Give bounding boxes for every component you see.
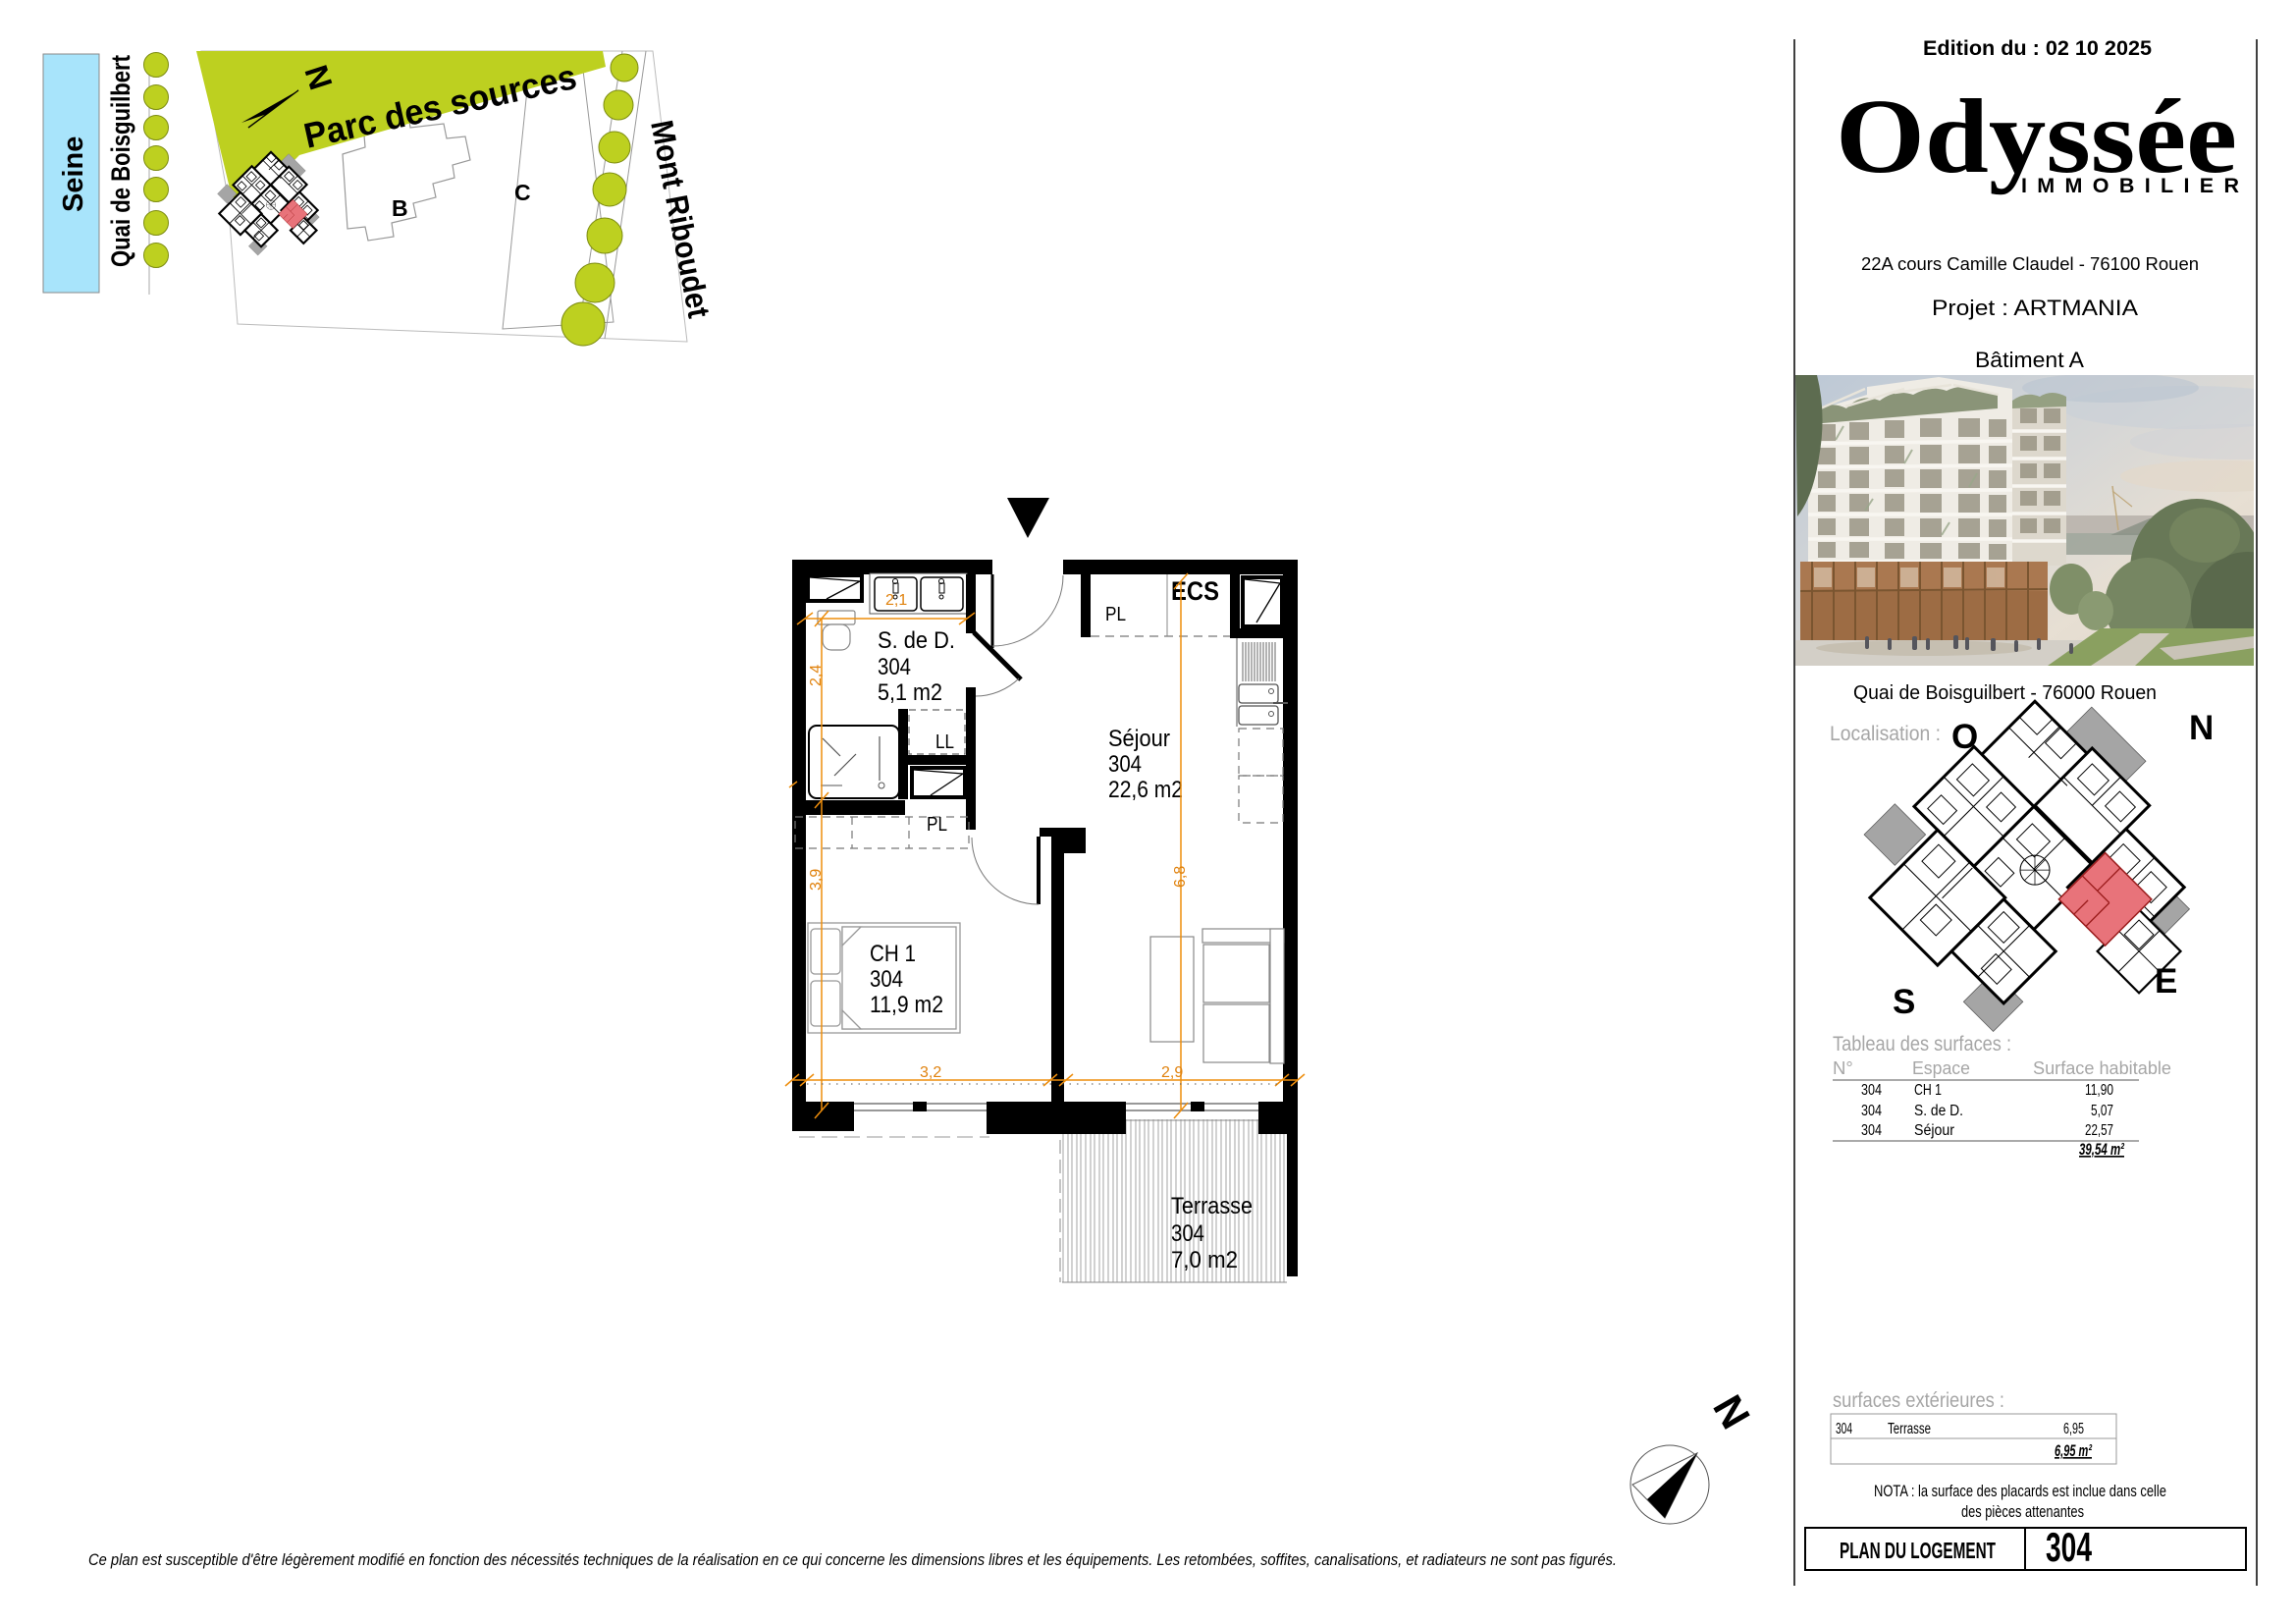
svg-text:5,1 m2: 5,1 m2 bbox=[878, 679, 942, 706]
svg-text:PLAN DU LOGEMENT: PLAN DU LOGEMENT bbox=[1840, 1538, 1996, 1563]
svg-text:304: 304 bbox=[1836, 1421, 1852, 1437]
svg-text:Surface habitable: Surface habitable bbox=[2033, 1057, 2171, 1078]
svg-text:Séjour: Séjour bbox=[1914, 1122, 1954, 1139]
svg-text:PL: PL bbox=[1105, 604, 1126, 625]
svg-text:22A cours Camille Claudel - 76: 22A cours Camille Claudel - 76100 Rouen bbox=[1861, 253, 2199, 274]
svg-text:22,57: 22,57 bbox=[2085, 1122, 2113, 1139]
svg-text:N: N bbox=[1704, 1387, 1759, 1436]
svg-text:ECS: ECS bbox=[1171, 576, 1219, 606]
svg-text:Tableau des surfaces :: Tableau des surfaces : bbox=[1833, 1033, 2011, 1056]
svg-text:304: 304 bbox=[870, 966, 903, 993]
svg-text:11,90: 11,90 bbox=[2085, 1082, 2113, 1099]
svg-text:2,1: 2,1 bbox=[885, 592, 907, 609]
svg-text:39,54 m²: 39,54 m² bbox=[2079, 1141, 2124, 1159]
svg-text:6,95 m²: 6,95 m² bbox=[2055, 1442, 2092, 1460]
svg-text:Quai de Boisguilbert: Quai de Boisguilbert bbox=[106, 55, 135, 267]
svg-text:5,07: 5,07 bbox=[2091, 1103, 2113, 1119]
svg-text:2,9: 2,9 bbox=[1161, 1064, 1183, 1081]
svg-text:7,0 m2: 7,0 m2 bbox=[1171, 1247, 1238, 1273]
svg-text:304: 304 bbox=[1171, 1220, 1204, 1247]
svg-text:CH 1: CH 1 bbox=[870, 941, 916, 967]
svg-text:C: C bbox=[514, 180, 531, 205]
svg-text:S: S bbox=[1893, 983, 1915, 1021]
svg-text:304: 304 bbox=[1861, 1082, 1882, 1099]
svg-text:PL: PL bbox=[927, 814, 947, 836]
svg-text:surfaces extérieures :: surfaces extérieures : bbox=[1833, 1389, 2004, 1412]
svg-text:des pièces attenantes: des pièces attenantes bbox=[1961, 1503, 2084, 1521]
svg-text:304: 304 bbox=[1861, 1103, 1882, 1119]
svg-text:Terrasse: Terrasse bbox=[1171, 1193, 1253, 1219]
svg-text:Terrasse: Terrasse bbox=[1888, 1421, 1931, 1437]
svg-text:Localisation :: Localisation : bbox=[1830, 723, 1941, 745]
svg-text:2,4: 2,4 bbox=[808, 665, 825, 686]
svg-text:304: 304 bbox=[2046, 1524, 2092, 1570]
svg-text:304: 304 bbox=[878, 654, 911, 680]
svg-text:LL: LL bbox=[935, 731, 954, 753]
svg-text:CH 1: CH 1 bbox=[1914, 1082, 1942, 1099]
svg-text:Mont Riboudet: Mont Riboudet bbox=[644, 117, 717, 320]
svg-text:Quai de Boisguilbert - 76000 R: Quai de Boisguilbert - 76000 Rouen bbox=[1853, 682, 2157, 704]
svg-text:Seine: Seine bbox=[58, 136, 89, 212]
svg-text:Projet : ARTMANIA: Projet : ARTMANIA bbox=[1932, 296, 2138, 320]
svg-text:6,95: 6,95 bbox=[2063, 1421, 2084, 1437]
svg-text:O: O bbox=[1951, 718, 1978, 756]
svg-text:Ce plan est susceptible d'être: Ce plan est susceptible d'être légèremen… bbox=[88, 1550, 1617, 1569]
svg-text:11,9 m2: 11,9 m2 bbox=[870, 992, 943, 1018]
svg-text:N°: N° bbox=[1833, 1057, 1853, 1078]
svg-text:IMMOBILIER: IMMOBILIER bbox=[2021, 174, 2239, 197]
svg-text:Séjour: Séjour bbox=[1108, 726, 1170, 752]
svg-text:NOTA : la surface des placards: NOTA : la surface des placards est inclu… bbox=[1874, 1483, 2166, 1500]
svg-text:Bâtiment A: Bâtiment A bbox=[1975, 348, 2084, 372]
svg-text:22,6 m2: 22,6 m2 bbox=[1108, 777, 1183, 803]
svg-text:6,8: 6,8 bbox=[1172, 866, 1189, 888]
svg-text:S. de D.: S. de D. bbox=[1914, 1103, 1963, 1119]
svg-text:N: N bbox=[2189, 709, 2214, 747]
svg-text:3,2: 3,2 bbox=[920, 1064, 941, 1081]
svg-text:Espace: Espace bbox=[1912, 1057, 1970, 1078]
svg-text:Edition du : 02 10 2025: Edition du : 02 10 2025 bbox=[1923, 36, 2152, 60]
svg-text:304: 304 bbox=[1108, 751, 1142, 778]
svg-text:304: 304 bbox=[1861, 1122, 1882, 1139]
svg-text:E: E bbox=[2155, 962, 2177, 1001]
svg-text:B: B bbox=[392, 195, 408, 221]
svg-text:S. de D.: S. de D. bbox=[878, 627, 955, 654]
svg-text:3,9: 3,9 bbox=[808, 869, 825, 891]
